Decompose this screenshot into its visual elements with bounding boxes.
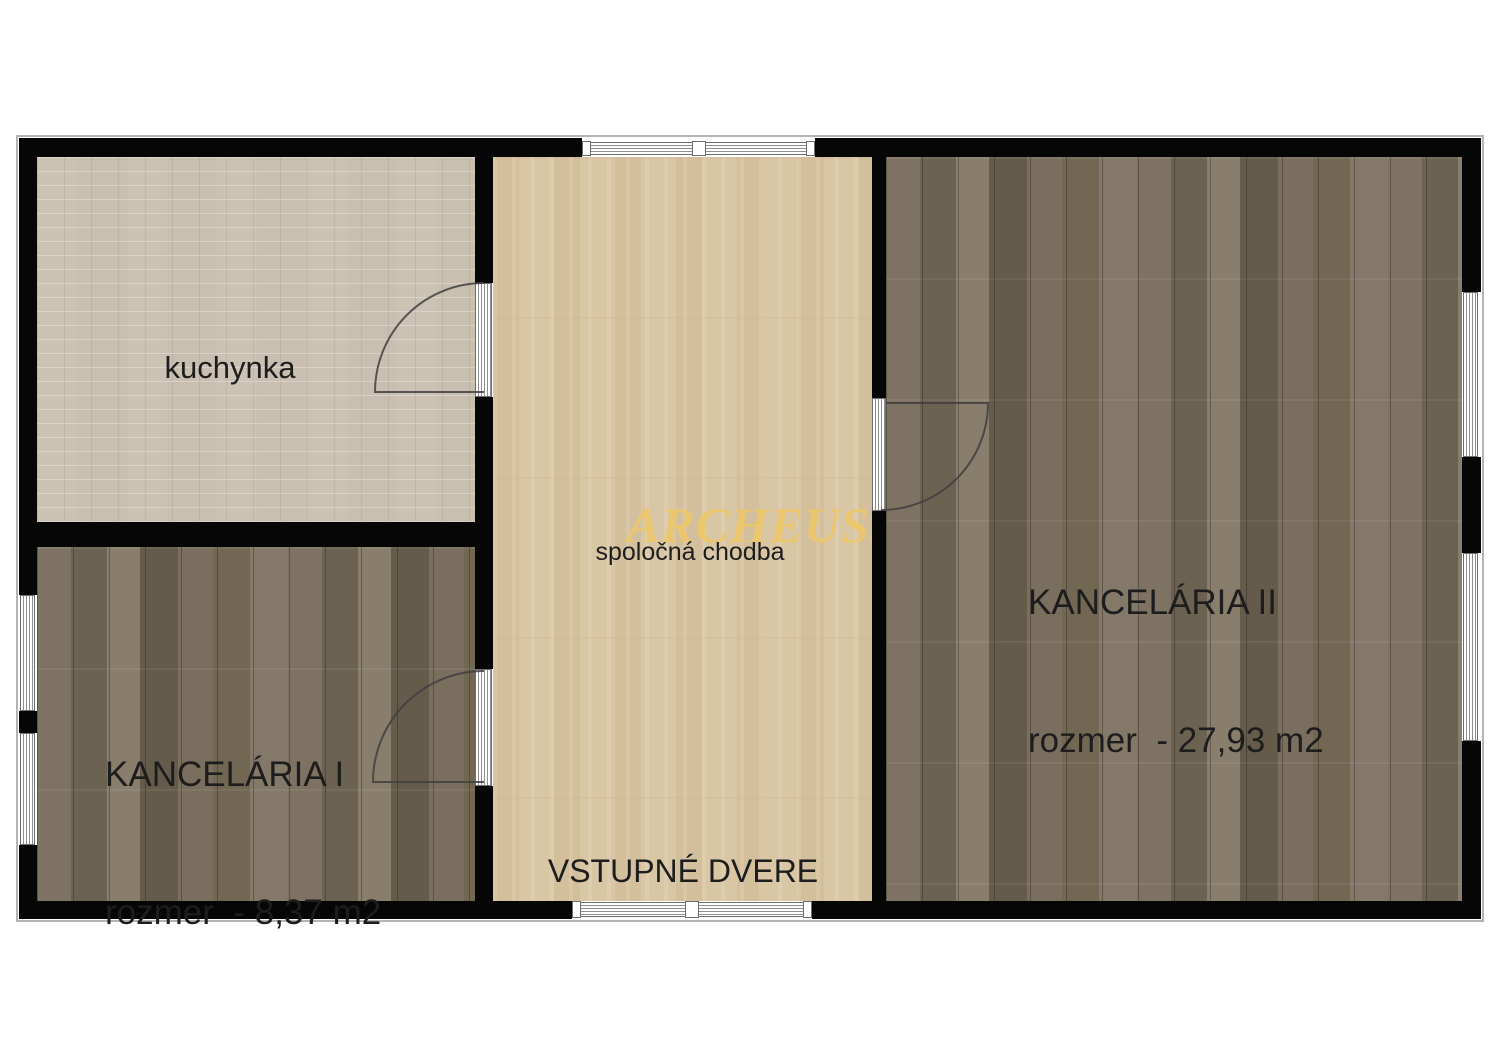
office2-name: KANCELÁRIA II [1028, 580, 1324, 626]
hallway-label: spoločná chodba [555, 538, 825, 567]
floor-plan: ARCHEUS. kuchynka spoločná chodba [0, 0, 1500, 1060]
wall-right-upper [1462, 138, 1481, 292]
wall-top-left [19, 138, 582, 157]
window-left-1 [20, 595, 35, 711]
window-top [582, 142, 815, 155]
office1-size: rozmer - 8,37 m2 [105, 890, 381, 936]
window-left-2 [20, 733, 35, 845]
kitchen-floor [37, 157, 475, 522]
office1-name: KANCELÁRIA I [105, 752, 381, 798]
office2-door-leaf [872, 398, 886, 511]
wall-hall-office2-upper [872, 157, 886, 398]
window-right-2 [1463, 553, 1478, 741]
window-right-1 [1463, 292, 1478, 457]
door-end-cap [803, 901, 812, 918]
door-end-cap [572, 901, 581, 918]
entrance-door-symbol [572, 902, 812, 917]
wall-top-right [815, 138, 1481, 157]
office1-label-block: KANCELÁRIA I rozmer - 8,37 m2 [105, 660, 381, 1028]
door-divider [685, 901, 699, 918]
office2-size: rozmer - 27,93 m2 [1028, 718, 1324, 764]
wall-left-pier [19, 711, 37, 733]
wall-right-pier [1462, 457, 1481, 553]
window-end-cap [806, 141, 815, 156]
wall-office1-hall-lower [475, 786, 493, 901]
kitchen-label: kuchynka [110, 350, 350, 386]
entrance-label: VSTUPNÉ DVERE [533, 853, 833, 890]
wall-kitchen-office1 [19, 522, 493, 547]
window-end-cap [582, 141, 591, 156]
wall-kitchen-hall-upper [475, 157, 493, 283]
window-divider [692, 141, 706, 156]
wall-left-lower [19, 845, 37, 919]
office1-door-leaf [475, 669, 492, 786]
wall-right-lower [1462, 741, 1481, 919]
office2-label-block: KANCELÁRIA II rozmer - 27,93 m2 [1028, 488, 1324, 856]
wall-hall-office2-lower [872, 511, 886, 901]
wall-bottom-right [812, 901, 1481, 919]
kitchen-door-leaf [475, 283, 492, 397]
